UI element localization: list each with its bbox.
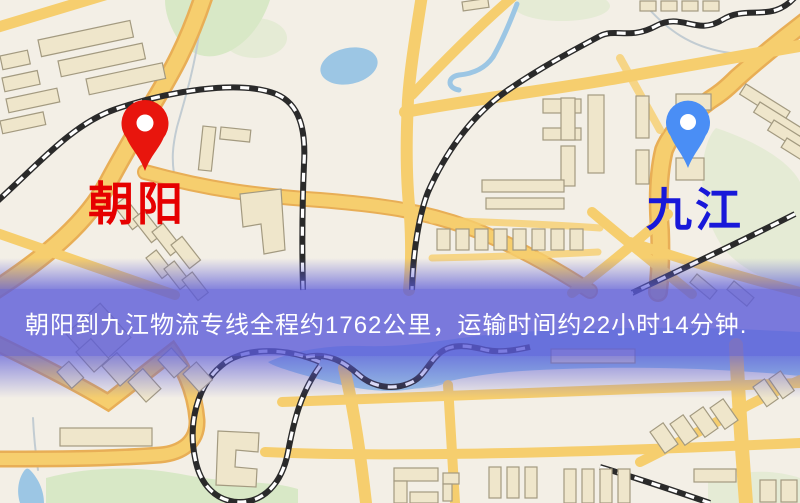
destination-marker-label: 九江 [646,187,744,233]
map-image [0,0,800,503]
pin-hole [137,115,154,132]
origin-marker-label: 朝阳 [88,181,186,227]
route-info-banner: 朝阳到九江物流专线全程约1762公里，运输时间约22小时14分钟. [0,289,800,356]
map-viewport: 朝阳 九江 朝阳到九江物流专线全程约1762公里，运输时间约22小时14分钟. [0,0,800,503]
pin-hole [680,114,696,130]
route-info-text: 朝阳到九江物流专线全程约1762公里，运输时间约22小时14分钟. [25,305,747,340]
